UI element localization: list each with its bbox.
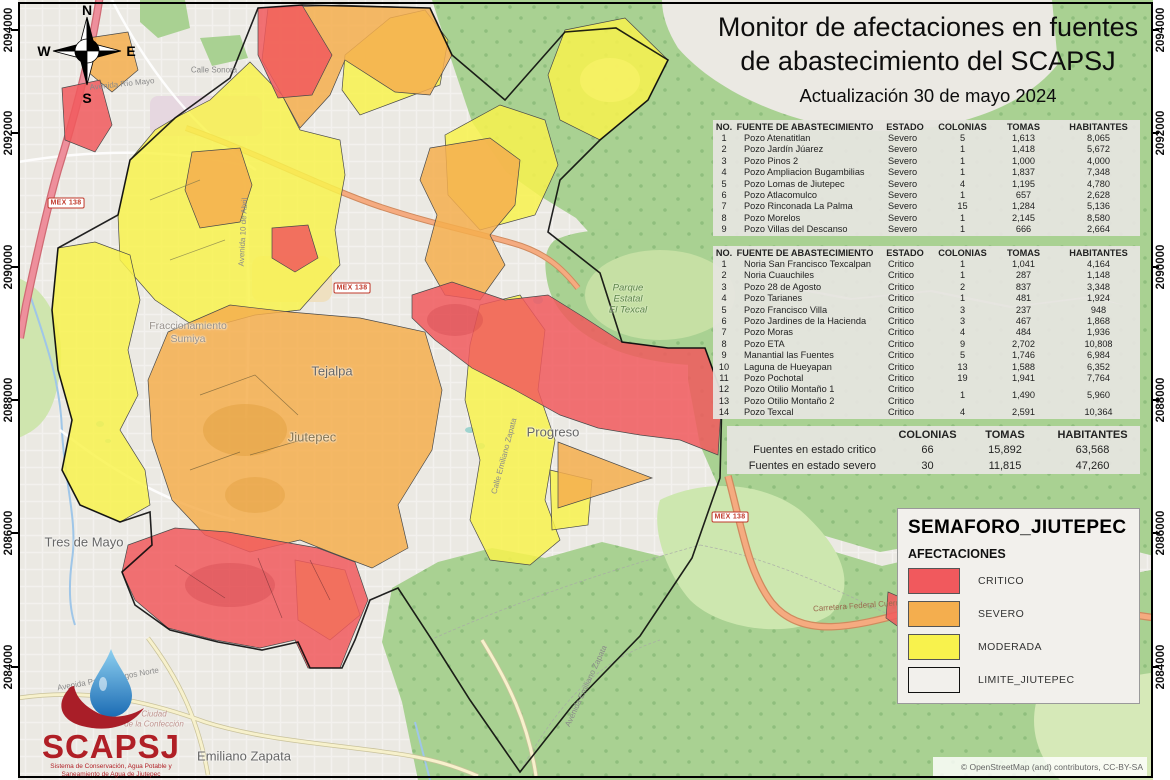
table-cell: 5 [935, 350, 990, 361]
table-cell: 6,352 [1057, 362, 1140, 373]
table-cell: Critico [875, 259, 935, 270]
table-cell: Pozo Moras [735, 327, 875, 338]
legend-label: SEVERO [978, 608, 1024, 620]
severo-header-row: NO.FUENTE DE ABASTECIMIENTOESTADOCOLONIA… [713, 120, 1140, 133]
column-header: COLONIAS [935, 246, 990, 259]
table-cell: 1 [935, 190, 990, 201]
table-cell: 63,568 [1045, 442, 1140, 458]
column-header: COLONIAS [935, 120, 990, 133]
compass-east: E [126, 43, 135, 59]
table-cell: 1,613 [990, 133, 1057, 144]
table-cell: Pozo Atlacomulco [735, 190, 875, 201]
table-cell: Severo [875, 213, 935, 224]
legend-item-severo: SEVERO [908, 598, 1139, 631]
attribution-text: © OpenStreetMap (and) contributors, CC-B… [961, 762, 1147, 772]
severo-swatch [908, 601, 960, 627]
table-cell: Severo [875, 133, 935, 144]
table-cell: 6,984 [1057, 350, 1140, 361]
table-cell: Pozo Jardines de la Hacienda [735, 316, 875, 327]
table-cell: 11,815 [965, 458, 1045, 474]
map-title: Monitor de afectaciones en fuentes de ab… [703, 10, 1153, 107]
table-cell: Noria Cuauchiles [735, 270, 875, 281]
table-cell: Manantial las Fuentes [735, 350, 875, 361]
table-cell: Pozo Tarianes [735, 293, 875, 304]
table-row: 9Manantial las FuentesCritico51,7466,984 [713, 350, 1140, 361]
compass-west: W [37, 43, 51, 59]
table-row: 6Pozo AtlacomulcoSevero16572,628 [713, 190, 1140, 201]
table-cell: 1 [935, 224, 990, 235]
table-cell: 5,960 [1057, 384, 1140, 407]
table-cell: 10,808 [1057, 339, 1140, 350]
column-header: NO. [713, 246, 735, 259]
table-row: 14Pozo TexcalCritico42,59110,364 [713, 407, 1140, 418]
table-cell: 1,936 [1057, 327, 1140, 338]
table-cell: 1,941 [990, 373, 1057, 384]
table-row: 12Pozo Otilio Montaño 1Critico11,4905,96… [713, 384, 1140, 395]
table-cell: 8,580 [1057, 213, 1140, 224]
table-cell: 5 [935, 133, 990, 144]
table-cell: Severo [875, 190, 935, 201]
table-cell: 19 [935, 373, 990, 384]
table-cell: 3,348 [1057, 282, 1140, 293]
column-header: HABITANTES [1045, 426, 1140, 442]
table-cell: 2,591 [990, 407, 1057, 418]
table-cell: 1,195 [990, 179, 1057, 190]
table-cell: 4 [713, 167, 735, 178]
table-cell: Critico [875, 316, 935, 327]
table-cell: 657 [990, 190, 1057, 201]
table-row: 5Pozo Francisco VillaCritico3237948 [713, 305, 1140, 316]
table-cell: 467 [990, 316, 1057, 327]
table-cell: 7,764 [1057, 373, 1140, 384]
table-cell: 1,418 [990, 144, 1057, 155]
critico-header-row: NO.FUENTE DE ABASTECIMIENTOESTADOCOLONIA… [713, 246, 1140, 259]
left-coordinate-tick [11, 399, 18, 401]
table-cell: Pozo Pochotal [735, 373, 875, 384]
table-cell: 287 [990, 270, 1057, 281]
table-row: 3Pozo Pinos 2Severo11,0004,000 [713, 156, 1140, 167]
table-cell: 237 [990, 305, 1057, 316]
legend-item-critico: CRITICO [908, 565, 1139, 598]
title-subtitle: Actualización 30 de mayo 2024 [703, 85, 1153, 107]
table-cell: 2 [935, 282, 990, 293]
table-cell: Noria San Francisco Texcalpan [735, 259, 875, 270]
table-cell: 1,490 [990, 384, 1057, 407]
table-cell: 9 [935, 339, 990, 350]
table-cell: 66 [890, 442, 965, 458]
legend-subtitle: AFECTACIONES [908, 547, 1139, 561]
summary-table: COLONIASTOMASHABITANTES Fuentes en estad… [727, 426, 1140, 474]
table-cell: Critico [875, 373, 935, 384]
table-cell: Pozo Pinos 2 [735, 156, 875, 167]
legend-label: CRITICO [978, 575, 1024, 587]
table-cell: Critico [875, 407, 935, 418]
table-row: 4Pozo TarianesCritico14811,924 [713, 293, 1140, 304]
compass-rose: N S W E [30, 4, 160, 112]
table-row: Fuentes en estado critico6615,89263,568 [727, 442, 1140, 458]
table-cell: 2,145 [990, 213, 1057, 224]
table-cell: Severo [875, 201, 935, 212]
table-cell: 7 [713, 327, 735, 338]
table-cell: 2,702 [990, 339, 1057, 350]
table-cell: 14 [713, 407, 735, 418]
right-coordinate-tick [1152, 266, 1159, 268]
column-header: TOMAS [990, 120, 1057, 133]
table-cell: Pozo Ampliacion Bugambilias [735, 167, 875, 178]
table-cell: Severo [875, 156, 935, 167]
table-cell: Fuentes en estado critico [727, 442, 890, 458]
table-cell: 2,664 [1057, 224, 1140, 235]
critico-swatch [908, 568, 960, 594]
limite-swatch [908, 667, 960, 693]
legend-item-limite: LIMITE_JIUTEPEC [908, 664, 1139, 697]
table-cell: 1 [935, 384, 990, 407]
logo-name: SCAPSJ [16, 731, 206, 763]
summary-header-row: COLONIASTOMASHABITANTES [727, 426, 1140, 442]
table-row: 3Pozo 28 de AgostoCritico28373,348 [713, 282, 1140, 293]
table-cell: 8 [713, 339, 735, 350]
table-cell: 4 [935, 327, 990, 338]
table-row: Fuentes en estado severo3011,81547,260 [727, 458, 1140, 474]
table-cell: 8 [713, 213, 735, 224]
critico-table: NO.FUENTE DE ABASTECIMIENTOESTADOCOLONIA… [713, 246, 1140, 419]
table-cell: Severo [875, 167, 935, 178]
table-cell: 12 [713, 384, 735, 395]
table-row: 2Pozo Jardín JúarezSevero11,4185,672 [713, 144, 1140, 155]
table-cell: 1,746 [990, 350, 1057, 361]
table-cell: 1 [935, 213, 990, 224]
table-cell: Critico [875, 339, 935, 350]
table-row: 1Pozo AtenatitlanSevero51,6138,065 [713, 133, 1140, 144]
table-cell: 666 [990, 224, 1057, 235]
table-cell: 1 [713, 133, 735, 144]
table-cell: 2,628 [1057, 190, 1140, 201]
logo-graphic [16, 646, 206, 730]
table-row: 1Noria San Francisco TexcalpanCritico11,… [713, 259, 1140, 270]
legend-label: LIMITE_JIUTEPEC [978, 674, 1074, 686]
table-cell: Pozo Jardín Júarez [735, 144, 875, 155]
table-row: 7Pozo MorasCritico44841,936 [713, 327, 1140, 338]
table-row: 10Laguna de HueyapanCritico131,5886,352 [713, 362, 1140, 373]
column-header: HABITANTES [1057, 120, 1140, 133]
table-cell: 481 [990, 293, 1057, 304]
table-row: 8Pozo MorelosSevero12,1458,580 [713, 213, 1140, 224]
table-cell: 47,260 [1045, 458, 1140, 474]
table-cell: 1,837 [990, 167, 1057, 178]
table-cell: Critico [875, 384, 935, 395]
table-cell: 13 [935, 362, 990, 373]
table-cell: Pozo 28 de Agosto [735, 282, 875, 293]
table-cell: 1 [935, 293, 990, 304]
table-cell: Pozo Texcal [735, 407, 875, 418]
table-cell: Pozo Otilio Montaño 1 [735, 384, 875, 395]
table-cell: Fuentes en estado severo [727, 458, 890, 474]
table-row: 7Pozo Rinconada La PalmaSevero151,2845,1… [713, 201, 1140, 212]
table-cell: Pozo Francisco Villa [735, 305, 875, 316]
table-cell: Severo [875, 224, 935, 235]
table-cell: 1 [935, 270, 990, 281]
table-cell: 2 [713, 144, 735, 155]
table-cell: Severo [875, 144, 935, 155]
table-cell: 13 [713, 396, 735, 407]
column-header: HABITANTES [1057, 246, 1140, 259]
table-cell: 4 [935, 407, 990, 418]
table-cell: 6 [713, 316, 735, 327]
left-coordinate-tick [11, 29, 18, 31]
table-cell: 3 [935, 305, 990, 316]
table-row: 8Pozo ETACritico92,70210,808 [713, 339, 1140, 350]
table-cell: 5,672 [1057, 144, 1140, 155]
table-cell: 948 [1057, 305, 1140, 316]
table-cell: Critico [875, 362, 935, 373]
table-cell: 3 [713, 282, 735, 293]
table-cell: Severo [875, 179, 935, 190]
table-cell: 11 [713, 373, 735, 384]
table-cell: 4 [935, 179, 990, 190]
table-row: 5Pozo Lomas de JiutepecSevero41,1954,780 [713, 179, 1140, 190]
table-row: 6Pozo Jardines de la HaciendaCritico3467… [713, 316, 1140, 327]
table-cell: 1 [935, 144, 990, 155]
table-cell: Critico [875, 396, 935, 407]
table-cell: 4,164 [1057, 259, 1140, 270]
column-header: TOMAS [965, 426, 1045, 442]
legend-item-moderada: MODERADA [908, 631, 1139, 664]
table-cell: Pozo Lomas de Jiutepec [735, 179, 875, 190]
table-cell: 1 [935, 167, 990, 178]
table-cell: 10,364 [1057, 407, 1140, 418]
table-cell: 1,148 [1057, 270, 1140, 281]
table-row: 9Pozo Villas del DescansoSevero16662,664 [713, 224, 1140, 235]
table-cell: 1,924 [1057, 293, 1140, 304]
table-cell: 15 [935, 201, 990, 212]
table-cell: 3 [713, 156, 735, 167]
attribution-bar: © OpenStreetMap (and) contributors, CC-B… [933, 757, 1147, 776]
right-coordinate-tick [1152, 532, 1159, 534]
right-coordinate-tick [1152, 666, 1159, 668]
table-cell: Critico [875, 327, 935, 338]
table-cell: Pozo ETA [735, 339, 875, 350]
scapsj-logo: SCAPSJ Sistema de Conservación, Agua Pot… [16, 646, 206, 778]
table-cell: Critico [875, 293, 935, 304]
table-cell: 3 [935, 316, 990, 327]
table-cell: 484 [990, 327, 1057, 338]
title-line1: Monitor de afectaciones en fuentes [703, 10, 1153, 44]
column-header: FUENTE DE ABASTECIMIENTO [735, 120, 875, 133]
table-cell: 6 [713, 190, 735, 201]
table-cell: 1,868 [1057, 316, 1140, 327]
water-drop-icon [90, 649, 132, 717]
moderada-swatch [908, 634, 960, 660]
table-cell: Pozo Villas del Descanso [735, 224, 875, 235]
severo-table: NO.FUENTE DE ABASTECIMIENTOESTADOCOLONIA… [713, 120, 1140, 236]
table-cell: 10 [713, 362, 735, 373]
right-coordinate-tick [1152, 399, 1159, 401]
table-cell: 1,284 [990, 201, 1057, 212]
table-cell: 7,348 [1057, 167, 1140, 178]
legend: SEMAFORO_JIUTEPEC AFECTACIONES CRITICO S… [897, 508, 1140, 704]
logo-tagline2: Saneamiento de Agua de Jiutepec [16, 771, 206, 779]
table-cell: Pozo Rinconada La Palma [735, 201, 875, 212]
map-document: 2094000209400020920002092000209000020900… [0, 0, 1170, 780]
column-header: ESTADO [875, 120, 935, 133]
table-cell: 5,136 [1057, 201, 1140, 212]
legend-label: MODERADA [978, 641, 1042, 653]
table-cell: 9 [713, 350, 735, 361]
column-header: NO. [713, 120, 735, 133]
left-coordinate-tick [11, 266, 18, 268]
table-cell: Critico [875, 270, 935, 281]
column-header: COLONIAS [890, 426, 965, 442]
table-cell: 9 [713, 224, 735, 235]
table-cell: 7 [713, 201, 735, 212]
table-cell: 1,000 [990, 156, 1057, 167]
table-cell: 8,065 [1057, 133, 1140, 144]
table-cell: Pozo Morelos [735, 213, 875, 224]
compass-north: N [82, 4, 92, 18]
table-cell: 4,780 [1057, 179, 1140, 190]
table-cell: 1 [713, 259, 735, 270]
table-cell: Critico [875, 305, 935, 316]
table-row: 2Noria CuauchilesCritico12871,148 [713, 270, 1140, 281]
table-cell: Critico [875, 350, 935, 361]
column-header: FUENTE DE ABASTECIMIENTO [735, 246, 875, 259]
title-line2: de abastecimiento del SCAPSJ [703, 44, 1153, 78]
column-header [727, 426, 890, 442]
table-cell: 15,892 [965, 442, 1045, 458]
table-cell: 837 [990, 282, 1057, 293]
column-header: ESTADO [875, 246, 935, 259]
table-cell: 30 [890, 458, 965, 474]
table-row: 4Pozo Ampliacion BugambiliasSevero11,837… [713, 167, 1140, 178]
table-cell: 1 [935, 259, 990, 270]
table-cell: 5 [713, 179, 735, 190]
table-cell: Critico [875, 282, 935, 293]
table-cell: 4,000 [1057, 156, 1140, 167]
right-coordinate-tick [1152, 132, 1159, 134]
column-header: TOMAS [990, 246, 1057, 259]
compass-south: S [82, 90, 91, 106]
left-coordinate-tick [11, 132, 18, 134]
table-cell: Laguna de Hueyapan [735, 362, 875, 373]
legend-title: SEMAFORO_JIUTEPEC [908, 517, 1139, 539]
table-row: 11Pozo PochotalCritico191,9417,764 [713, 373, 1140, 384]
table-cell: Pozo Atenatitlan [735, 133, 875, 144]
table-cell: 1 [935, 156, 990, 167]
table-cell: 5 [713, 305, 735, 316]
table-cell: 1,041 [990, 259, 1057, 270]
table-cell: 2 [713, 270, 735, 281]
left-coordinate-tick [11, 532, 18, 534]
right-coordinate-tick [1152, 29, 1159, 31]
table-cell: Pozo Otilio Montaño 2 [735, 396, 875, 407]
table-cell: 1,588 [990, 362, 1057, 373]
table-cell: 4 [713, 293, 735, 304]
